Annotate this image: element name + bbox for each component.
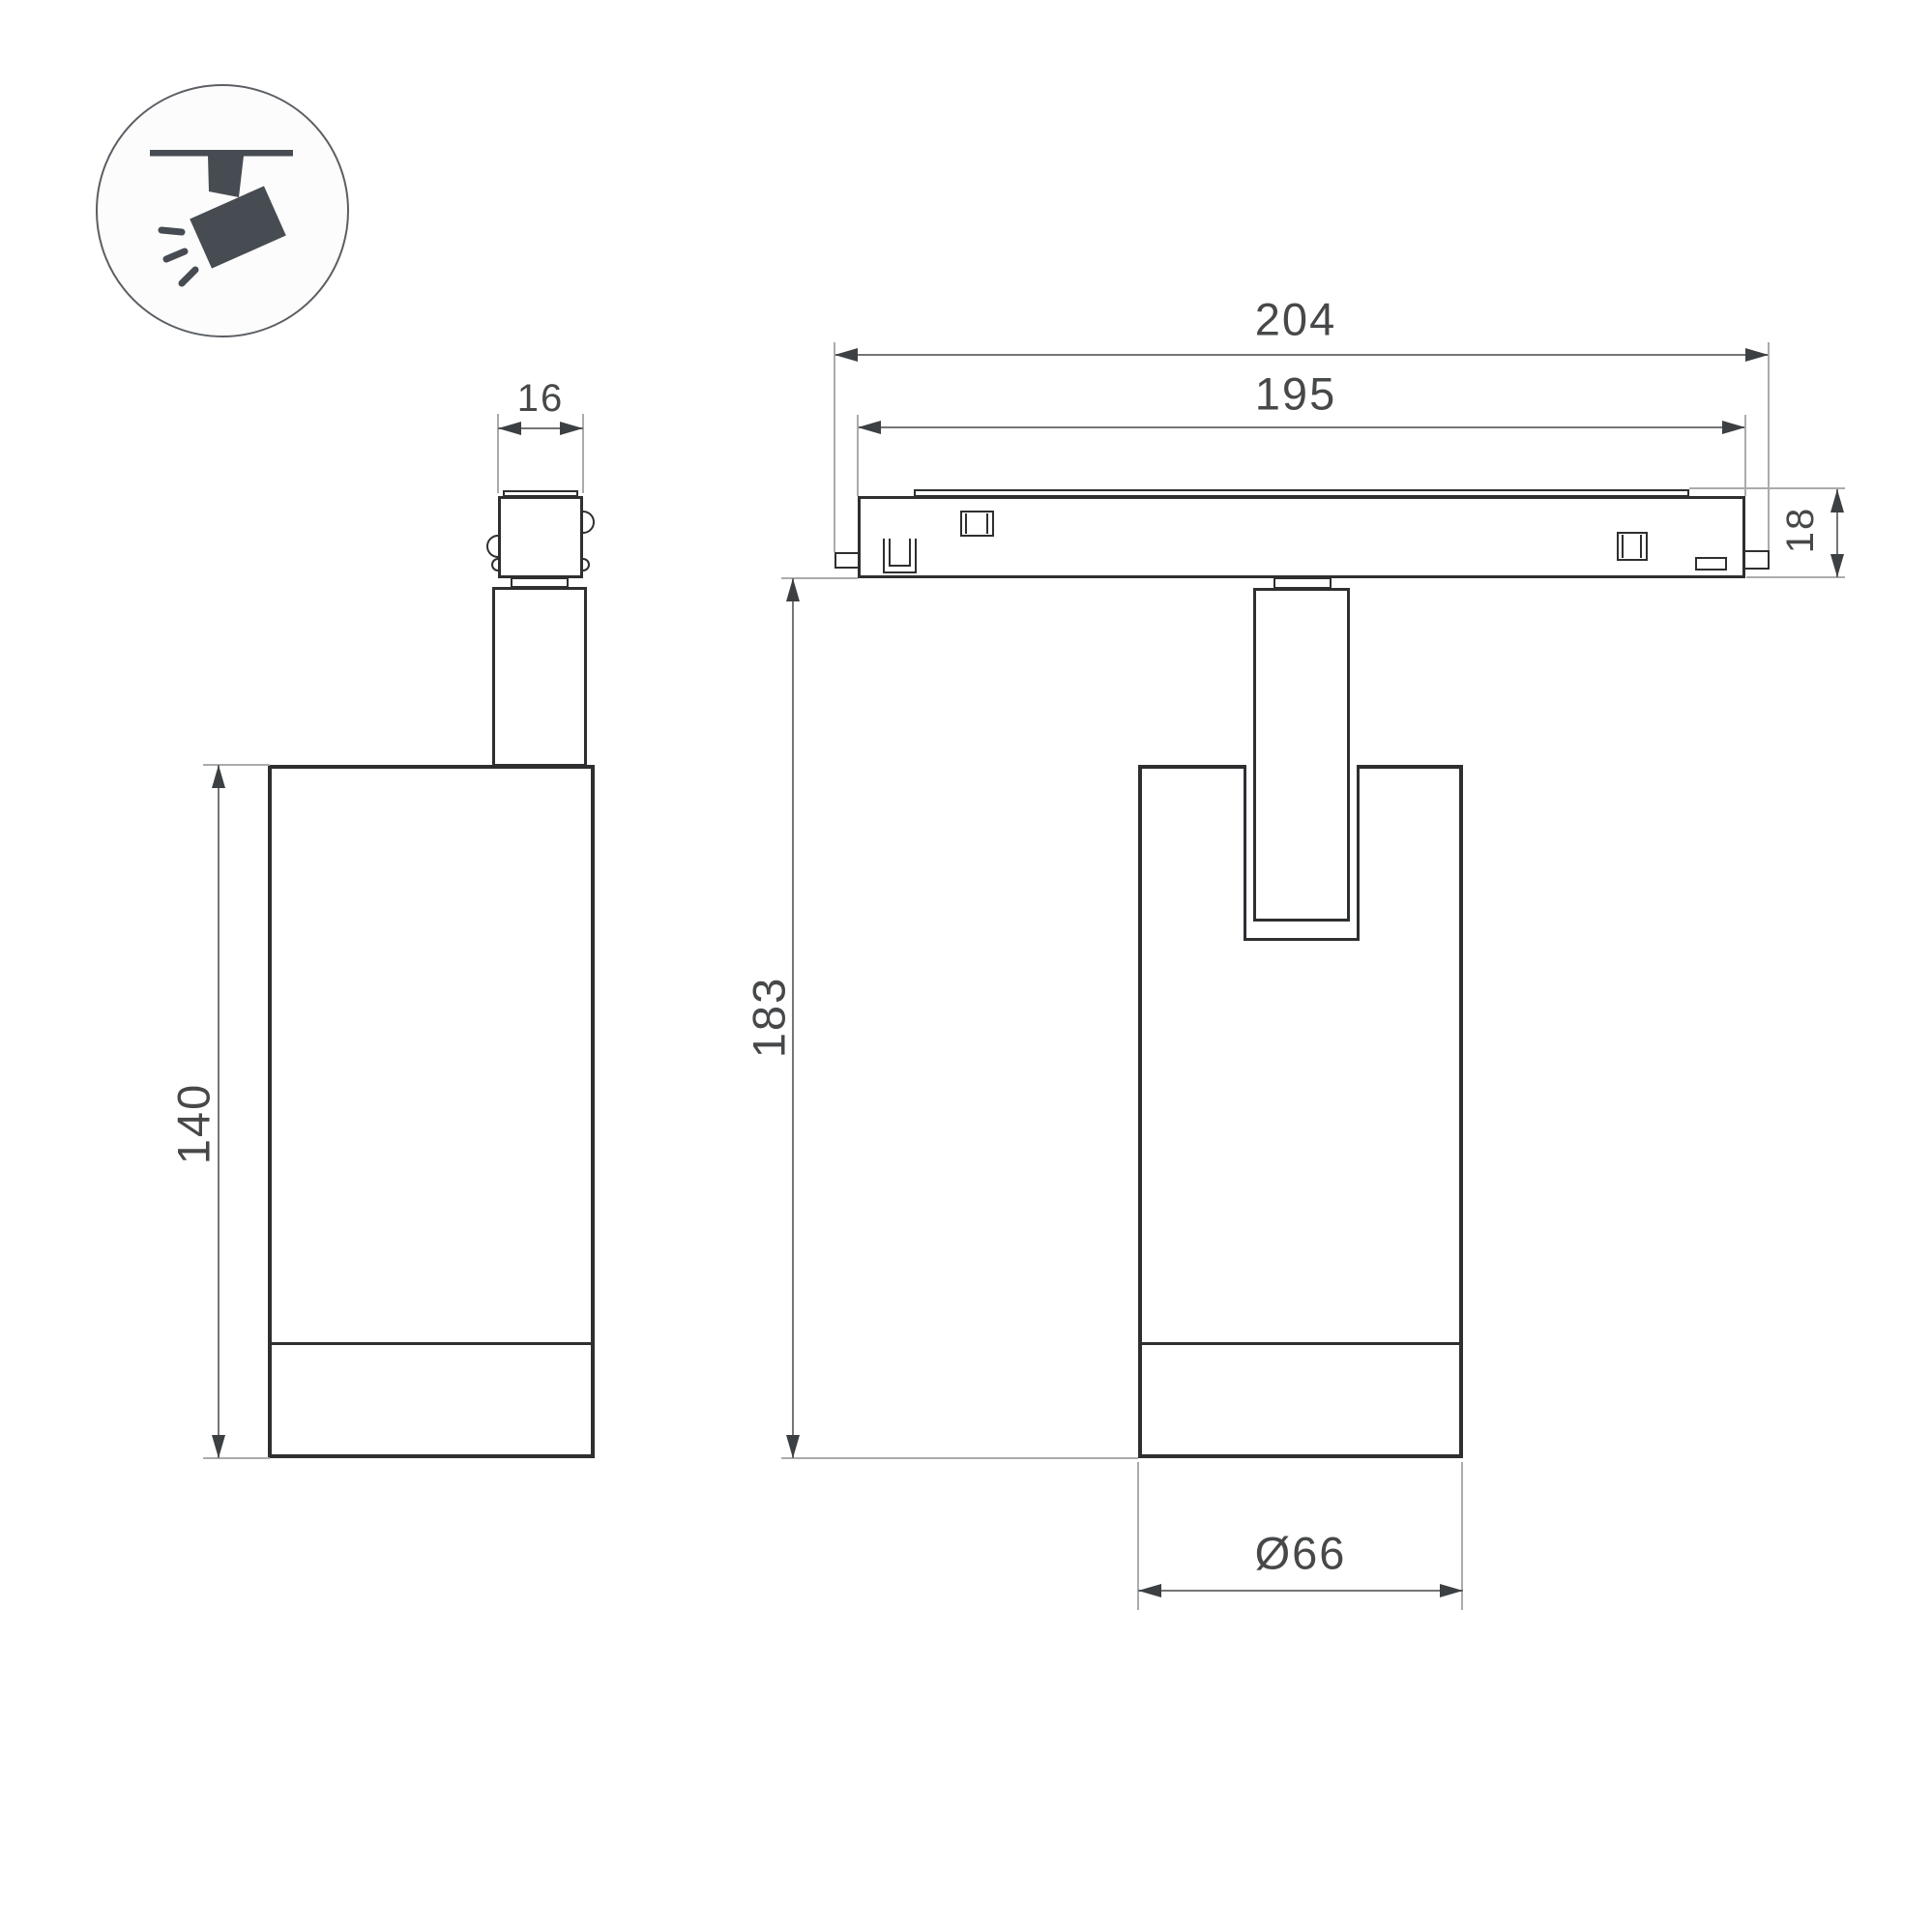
track-window-left-mullion (986, 513, 988, 534)
track-end-tab-left (834, 552, 860, 569)
dim-label-overall-height: 183 (746, 977, 792, 1058)
front-body-divider (1138, 1342, 1463, 1345)
arrowhead-right-icon (1722, 421, 1745, 434)
track-window-right-mullion (1622, 535, 1624, 558)
front-stem (1253, 588, 1350, 922)
track-end-tab-right (1743, 550, 1770, 570)
arrowhead-left-icon (1138, 1584, 1161, 1597)
dim-line-66 (1138, 1590, 1463, 1592)
side-track-adapter (498, 496, 583, 578)
arrowhead-up-icon (212, 765, 225, 788)
side-body-divider (268, 1342, 595, 1345)
dim-label-stem-width: 16 (517, 379, 565, 418)
arrowhead-left-icon (834, 348, 858, 362)
dim-label-body-height: 140 (171, 1083, 217, 1164)
arrowhead-up-icon (786, 578, 800, 601)
dim-label-track-outer: 204 (1255, 297, 1336, 342)
arrowhead-right-icon (1745, 348, 1769, 362)
front-body-top-edge-right (1360, 765, 1463, 769)
track-spotlight-icon (93, 81, 352, 340)
arrowhead-left-icon (498, 422, 521, 435)
ext-line (1744, 415, 1746, 496)
dim-label-body-diameter: Ø66 (1255, 1531, 1347, 1576)
dim-label-track-height: 18 (1781, 507, 1820, 554)
track-bar (858, 496, 1745, 578)
arrowhead-right-icon (560, 422, 583, 435)
track-window-left-mullion (965, 513, 967, 534)
side-body (268, 765, 595, 1458)
ext-line (1689, 487, 1845, 489)
front-body-top-edge-left (1138, 765, 1244, 769)
dim-label-track-inner: 195 (1255, 371, 1336, 417)
arrowhead-down-icon (212, 1435, 225, 1458)
icon-stem (208, 156, 244, 197)
track-u-clip-inner (889, 539, 911, 567)
arrowhead-left-icon (858, 421, 881, 434)
icon-track-bar (150, 150, 293, 157)
arrowhead-down-icon (1830, 554, 1844, 577)
track-window-right-mullion (1640, 535, 1642, 558)
arrowhead-up-icon (1830, 489, 1844, 512)
track-slot-right (1695, 557, 1727, 571)
dim-line-204 (834, 354, 1769, 356)
side-stem (492, 587, 587, 767)
ext-line (857, 415, 859, 496)
arrowhead-right-icon (1440, 1584, 1463, 1597)
ext-line (781, 1457, 1138, 1459)
arrowhead-down-icon (786, 1435, 800, 1458)
ext-line (834, 342, 835, 552)
ext-line (1768, 342, 1770, 550)
drawing-canvas: 16 140 204 195 18 (0, 0, 1932, 1932)
dim-line-195 (858, 426, 1745, 428)
